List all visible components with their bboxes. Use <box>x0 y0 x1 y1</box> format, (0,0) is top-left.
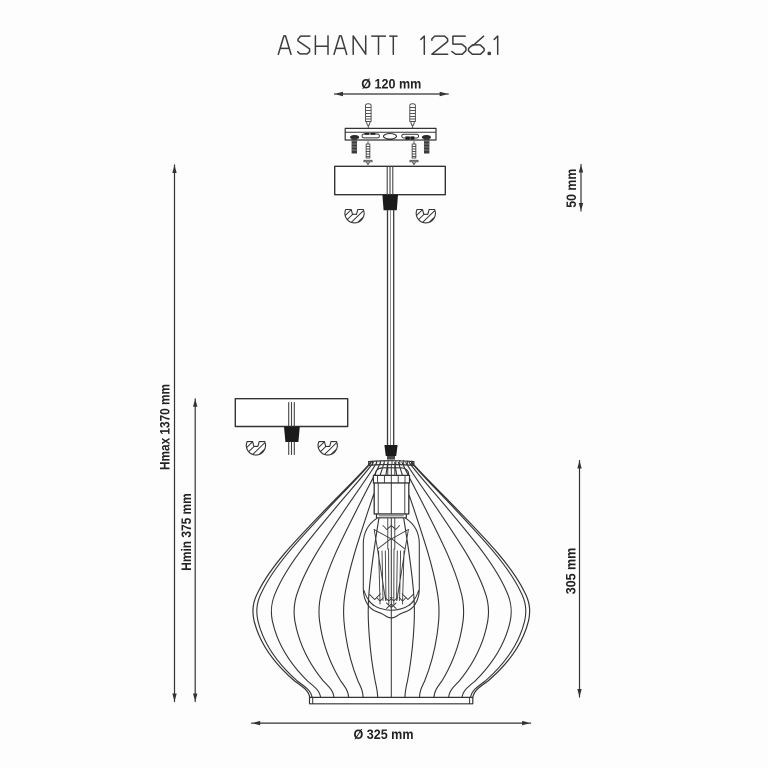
svg-text:Hmin 375 mm: Hmin 375 mm <box>178 493 194 571</box>
svg-text:Hmax 1370 mm: Hmax 1370 mm <box>156 384 172 470</box>
svg-text:50 mm: 50 mm <box>563 169 579 208</box>
svg-text:Ø 325 mm: Ø 325 mm <box>354 726 414 742</box>
svg-text:305 mm: 305 mm <box>562 548 578 595</box>
svg-text:Ø 120 mm: Ø 120 mm <box>361 75 421 91</box>
